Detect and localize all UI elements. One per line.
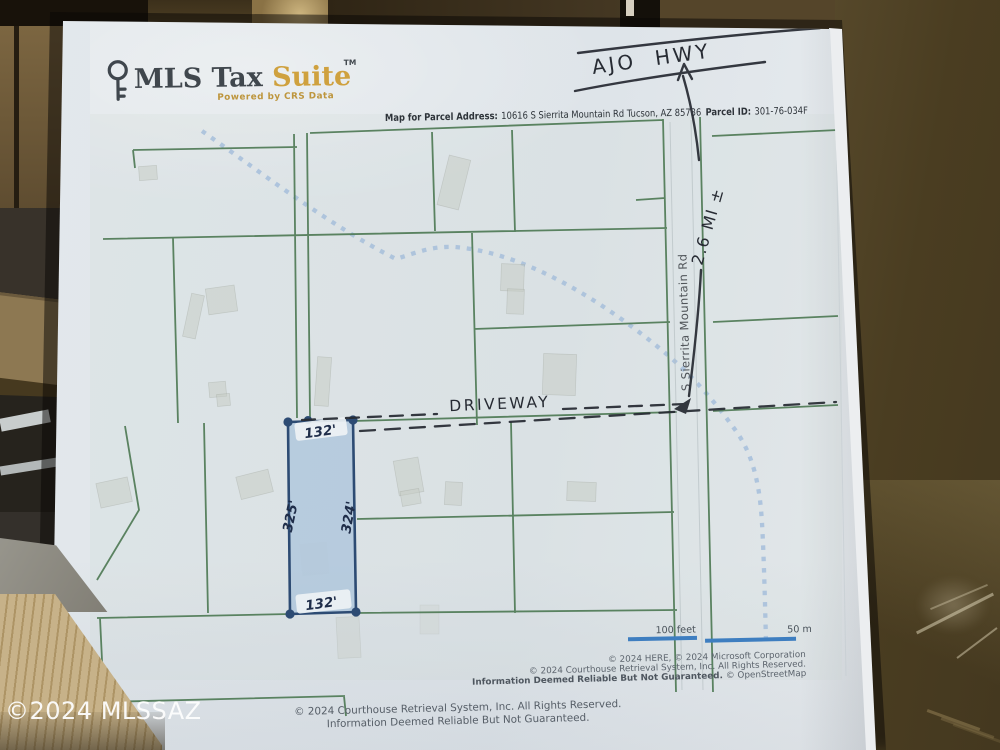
parcel-id-label: Parcel ID:	[705, 107, 751, 119]
background-left-frame-line	[14, 26, 19, 214]
mls-tax-suite-logo: MLS Tax Suite TM Powered by CRS Data	[109, 58, 357, 104]
document-footer: © 2024 Courthouse Retrieval System, Inc.…	[294, 698, 622, 731]
mls-watermark: ©2024 MLSSAZ	[5, 697, 202, 725]
logo-tagline: Powered by CRS Data	[217, 91, 334, 103]
logo-brand: MLS Tax	[134, 62, 273, 95]
key-icon	[109, 62, 127, 100]
subject-parcel: 132' 132' 325' 324'	[280, 415, 361, 618]
parcel-id-value: 301-76-034F	[754, 106, 808, 118]
background-sliver	[626, 0, 634, 16]
logo-suite: Suite	[272, 61, 351, 93]
address-label: Map for Parcel Address:	[385, 111, 498, 124]
logo-text: MLS Tax Suite	[134, 61, 352, 95]
scale-feet-label: 100 feet	[655, 624, 696, 636]
credit-line3-tail: © OpenStreetMap	[726, 669, 807, 681]
photo-scene: MLS Tax Suite TM Powered by CRS Data Map…	[0, 0, 1000, 750]
logo-tm: TM	[344, 58, 357, 67]
scale-meters-label: 50 m	[787, 624, 812, 636]
